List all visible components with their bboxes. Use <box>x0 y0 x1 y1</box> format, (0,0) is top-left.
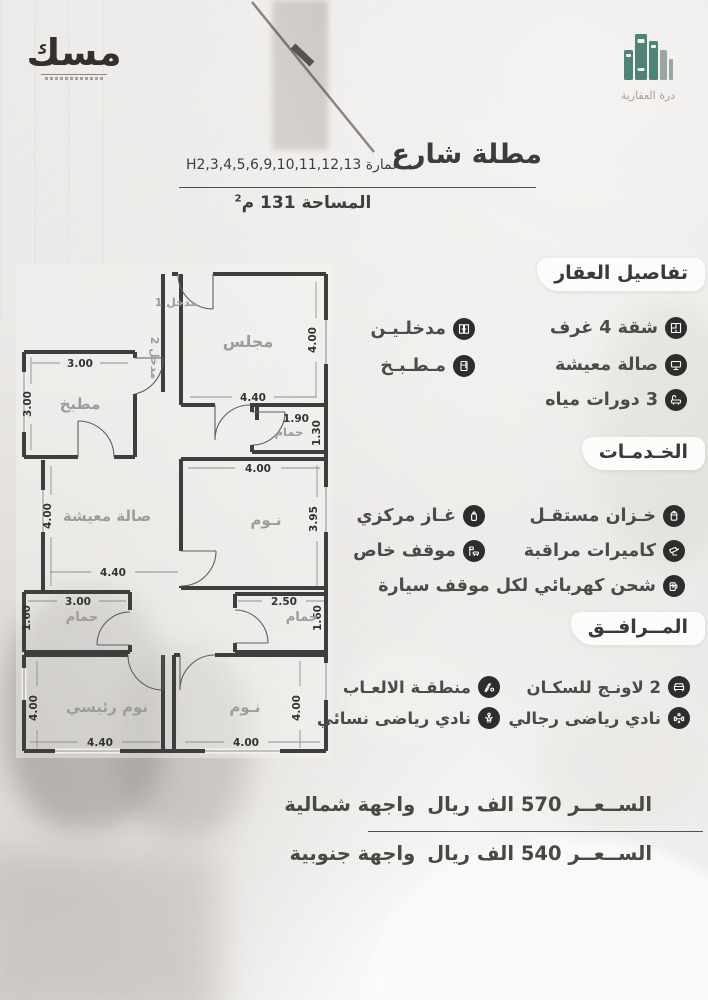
dim-majlis-height: 4.00 <box>307 327 319 353</box>
dim-master-width: 4.40 <box>87 737 113 749</box>
entry-item-kitchen: مـطـبـخ <box>380 355 475 377</box>
title-divider <box>179 187 536 188</box>
service-item-gas: غـاز مركزي <box>357 505 486 527</box>
entry-item-label: مدخلـيـن <box>370 319 446 339</box>
entry-item-entrances: مدخلـيـن <box>370 318 475 340</box>
playground-icon <box>478 676 500 698</box>
amenity-item-label: منطقـة الالعـاب <box>343 678 471 697</box>
dim-wc1-width: 1.90 <box>283 413 309 425</box>
area-superscript: 2 <box>235 193 242 204</box>
dim-kitchen-height: 3.00 <box>22 391 34 417</box>
service-item-label: خـزان مستقـل <box>530 506 657 526</box>
dim-bed1-height: 3.95 <box>308 506 320 532</box>
water-tank-icon <box>663 505 685 527</box>
service-item-tank: خـزان مستقـل <box>530 505 686 527</box>
service-item-label: شحن كهربائي لكل موقف سيارة <box>378 576 656 596</box>
bathroom-icon <box>665 389 687 411</box>
entrance-1-label: مدخل 1 <box>155 296 197 309</box>
dim-kitchen-width: 3.00 <box>67 358 93 370</box>
service-item-label: موقف خاص <box>353 541 456 561</box>
amenity-item-womens-gym: نادي رياضى نسائي <box>317 707 500 729</box>
apartment-plan-icon <box>665 317 687 339</box>
service-item-label: كاميرات مراقبة <box>524 541 656 561</box>
detail-item-apartment: شقة 4 غرف <box>550 317 687 339</box>
room-label-living: صالة معيشة <box>63 507 151 525</box>
room-label-wc3: حمام <box>286 610 319 625</box>
room-label-master: نوم رئيسي <box>66 698 148 716</box>
detail-item-label: صالة معيشة <box>555 355 658 375</box>
dim-wc2-width: 3.00 <box>65 596 91 608</box>
dim-living-width: 4.40 <box>100 567 126 579</box>
dim-bed2-height: 4.00 <box>291 695 303 721</box>
room-label-bed2: نـوم <box>229 698 260 716</box>
price-amount: الســعــر 540 الف ريال <box>427 842 652 865</box>
flyer-canvas: 4.40 4.00 3.00 3.00 1.90 1.30 4.00 4.40 … <box>0 0 708 1000</box>
dim-majlis-width: 4.40 <box>240 392 266 404</box>
womens-gym-icon <box>478 707 500 729</box>
lounge-icon <box>668 676 690 698</box>
price-row-north: الســعــر 570 الف ريال واجهة شمالية <box>284 793 652 816</box>
section-heading-amenities: المــرافــق <box>571 612 705 645</box>
misk-logo-wordmark: مسك <box>24 34 124 71</box>
section-heading-details: تفاصيل العقار <box>537 258 705 291</box>
detail-item-label: 3 دورات مياه <box>545 390 658 410</box>
living-room-icon <box>665 354 687 376</box>
dim-living-height: 4.00 <box>42 503 54 529</box>
detail-item-label: شقة 4 غرف <box>550 318 658 338</box>
detail-item-living: صالة معيشة <box>555 354 687 376</box>
durrah-logo-mark <box>621 28 675 82</box>
price-facade: واجهة جنوبية <box>290 842 416 865</box>
kitchen-icon <box>453 355 475 377</box>
room-label-wc1: حمام <box>275 425 304 439</box>
section-heading-services: الخـدمـات <box>582 437 705 470</box>
service-item-parking: موقف خاص <box>353 540 485 562</box>
price-amount: الســعــر 570 الف ريال <box>427 793 652 816</box>
room-label-wc2: حمام <box>66 610 99 625</box>
dim-bed2-width: 4.00 <box>233 737 259 749</box>
misk-logo: مسك <box>24 34 124 80</box>
private-parking-icon <box>463 540 485 562</box>
price-facade: واجهة شمالية <box>284 793 415 816</box>
entrance-2-label: مدخل 2 <box>148 337 161 379</box>
amenity-item-label: نادي رياضى نسائي <box>317 709 471 728</box>
room-label-majlis: مجلس <box>223 332 274 351</box>
building-numbers: عمارة H2,3,4,5,6,9,10,11,12,13 <box>186 157 401 173</box>
area-value: المساحة 131 م2 <box>228 193 378 213</box>
mens-gym-icon <box>668 707 690 729</box>
ev-charger-icon <box>663 575 685 597</box>
room-label-kitchen: مطبخ <box>60 395 101 413</box>
gas-cylinder-icon <box>463 505 485 527</box>
amenity-item-playground: منطقـة الالعـاب <box>343 676 500 698</box>
entry-item-label: مـطـبـخ <box>380 356 446 376</box>
cctv-camera-icon <box>663 540 685 562</box>
page-title: مطلة شارع <box>392 139 543 170</box>
misk-logo-rule <box>41 74 107 75</box>
door-icon <box>453 318 475 340</box>
amenity-item-lounge: 2 لاونـج للسكـان <box>527 676 690 698</box>
room-label-bed1: نـوم <box>250 511 281 529</box>
service-item-label: غـاز مركزي <box>357 506 457 526</box>
amenity-item-label: 2 لاونـج للسكـان <box>527 678 661 697</box>
detail-item-bathrooms: 3 دورات مياه <box>545 389 687 411</box>
price-row-south: الســعــر 540 الف ريال واجهة جنوبية <box>290 842 652 865</box>
dim-wc3-width: 2.50 <box>271 596 297 608</box>
service-item-cameras: كاميرات مراقبة <box>524 540 685 562</box>
amenity-item-label: نادي رياضى رجالي <box>509 709 661 728</box>
durrah-logo: درة العقارية <box>600 28 696 102</box>
area-text: المساحة 131 م <box>242 193 372 213</box>
track-light-line <box>252 2 374 152</box>
dim-bed1-width: 4.00 <box>245 463 271 475</box>
dim-master-height: 4.00 <box>28 695 40 721</box>
dim-wc2-height: 1.60 <box>21 605 33 631</box>
durrah-logo-label: درة العقارية <box>600 89 696 102</box>
price-divider <box>368 831 703 832</box>
service-item-ev-charging: شحن كهربائي لكل موقف سيارة <box>378 575 685 597</box>
amenity-item-mens-gym: نادي رياضى رجالي <box>509 707 690 729</box>
misk-logo-caption <box>45 77 103 80</box>
dim-wc1-height: 1.30 <box>311 420 323 446</box>
